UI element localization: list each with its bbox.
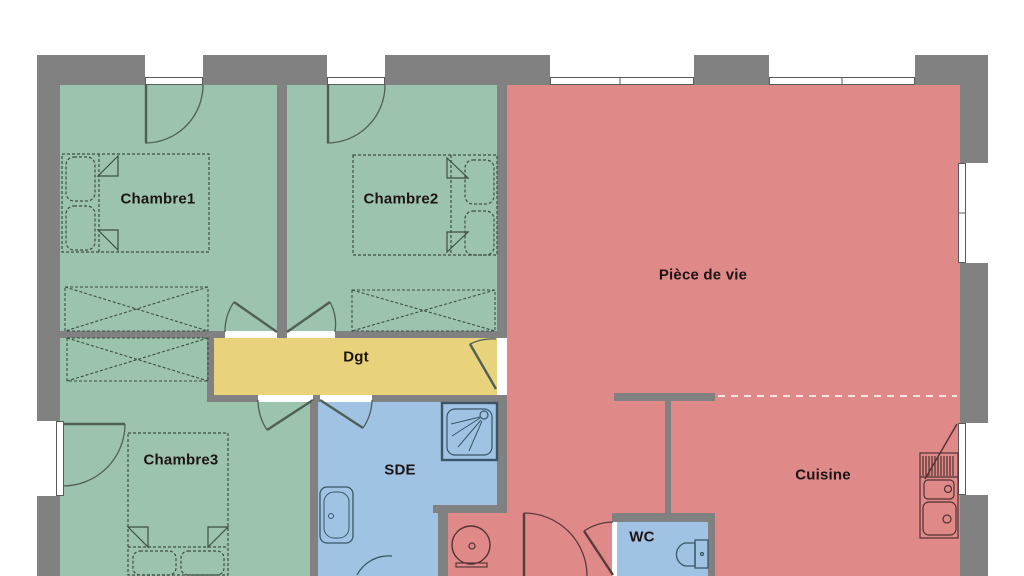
wall-left-2 bbox=[37, 496, 60, 576]
room-chambre2 bbox=[287, 85, 497, 331]
window-right-upper-glass bbox=[958, 163, 966, 263]
wall-t-stem bbox=[665, 401, 671, 516]
wall-ch1-ch2 bbox=[277, 85, 287, 331]
room-sde-lower bbox=[318, 511, 448, 576]
window-right-lower-glass bbox=[958, 423, 966, 495]
door-opening-chambre2 bbox=[287, 331, 335, 338]
label-chambre1: Chambre1 bbox=[121, 191, 196, 208]
label-wc: WC bbox=[629, 529, 654, 546]
window-left-glass bbox=[56, 421, 64, 496]
wall-top-1 bbox=[37, 55, 145, 85]
door-opening-chambre3 bbox=[258, 395, 313, 402]
label-chambre2: Chambre2 bbox=[364, 191, 439, 208]
window-sejour-1-glass bbox=[550, 77, 694, 85]
room-chambre1 bbox=[60, 85, 277, 331]
wall-corridor-bottom-b bbox=[313, 395, 320, 402]
wall-top-2 bbox=[203, 55, 327, 85]
wall-t-bar bbox=[614, 393, 715, 401]
door-opening-chambre1 bbox=[225, 331, 277, 338]
wall-top-5 bbox=[915, 55, 988, 85]
wall-top-3 bbox=[385, 55, 550, 85]
wall-sde-step-v bbox=[438, 513, 448, 576]
floor-plan: Chambre1 Chambre2 Chambre3 Pièce de vie … bbox=[0, 0, 1024, 576]
wall-ch3-sde bbox=[310, 402, 318, 576]
wall-corridor-top-a bbox=[60, 331, 225, 338]
room-dgt bbox=[207, 331, 507, 402]
window-chambre2-glass bbox=[327, 77, 385, 85]
wall-corridor-bottom-c bbox=[372, 395, 507, 402]
wall-left-1 bbox=[37, 85, 60, 421]
door-opening-dgt-sejour bbox=[497, 338, 507, 395]
wall-sde-right bbox=[497, 395, 507, 505]
label-chambre3: Chambre3 bbox=[144, 452, 219, 469]
window-sejour-2-glass bbox=[769, 77, 915, 85]
label-dgt: Dgt bbox=[343, 349, 369, 366]
wall-wc-right bbox=[708, 513, 715, 576]
wall-corridor-bottom-a bbox=[214, 395, 258, 402]
label-cuisine: Cuisine bbox=[795, 467, 851, 484]
wall-top-4 bbox=[694, 55, 769, 85]
wall-right-1 bbox=[960, 85, 988, 163]
wall-corridor-left bbox=[207, 331, 214, 402]
door-opening-sde bbox=[320, 395, 372, 402]
wall-corridor-top-b bbox=[277, 331, 287, 338]
room-wc bbox=[612, 513, 715, 576]
wall-right-3 bbox=[960, 495, 988, 576]
wall-right-2 bbox=[960, 263, 988, 423]
room-sde-main bbox=[318, 395, 507, 513]
wall-sde-step-h bbox=[433, 505, 507, 513]
wall-corridor-top-c bbox=[335, 331, 497, 338]
label-sde: SDE bbox=[384, 462, 415, 479]
label-piece-de-vie: Pièce de vie bbox=[659, 267, 747, 284]
window-chambre1-glass bbox=[145, 77, 203, 85]
door-opening-wc bbox=[612, 522, 617, 576]
wall-ch2-sejour bbox=[497, 85, 507, 338]
wall-wc-top bbox=[612, 513, 715, 522]
